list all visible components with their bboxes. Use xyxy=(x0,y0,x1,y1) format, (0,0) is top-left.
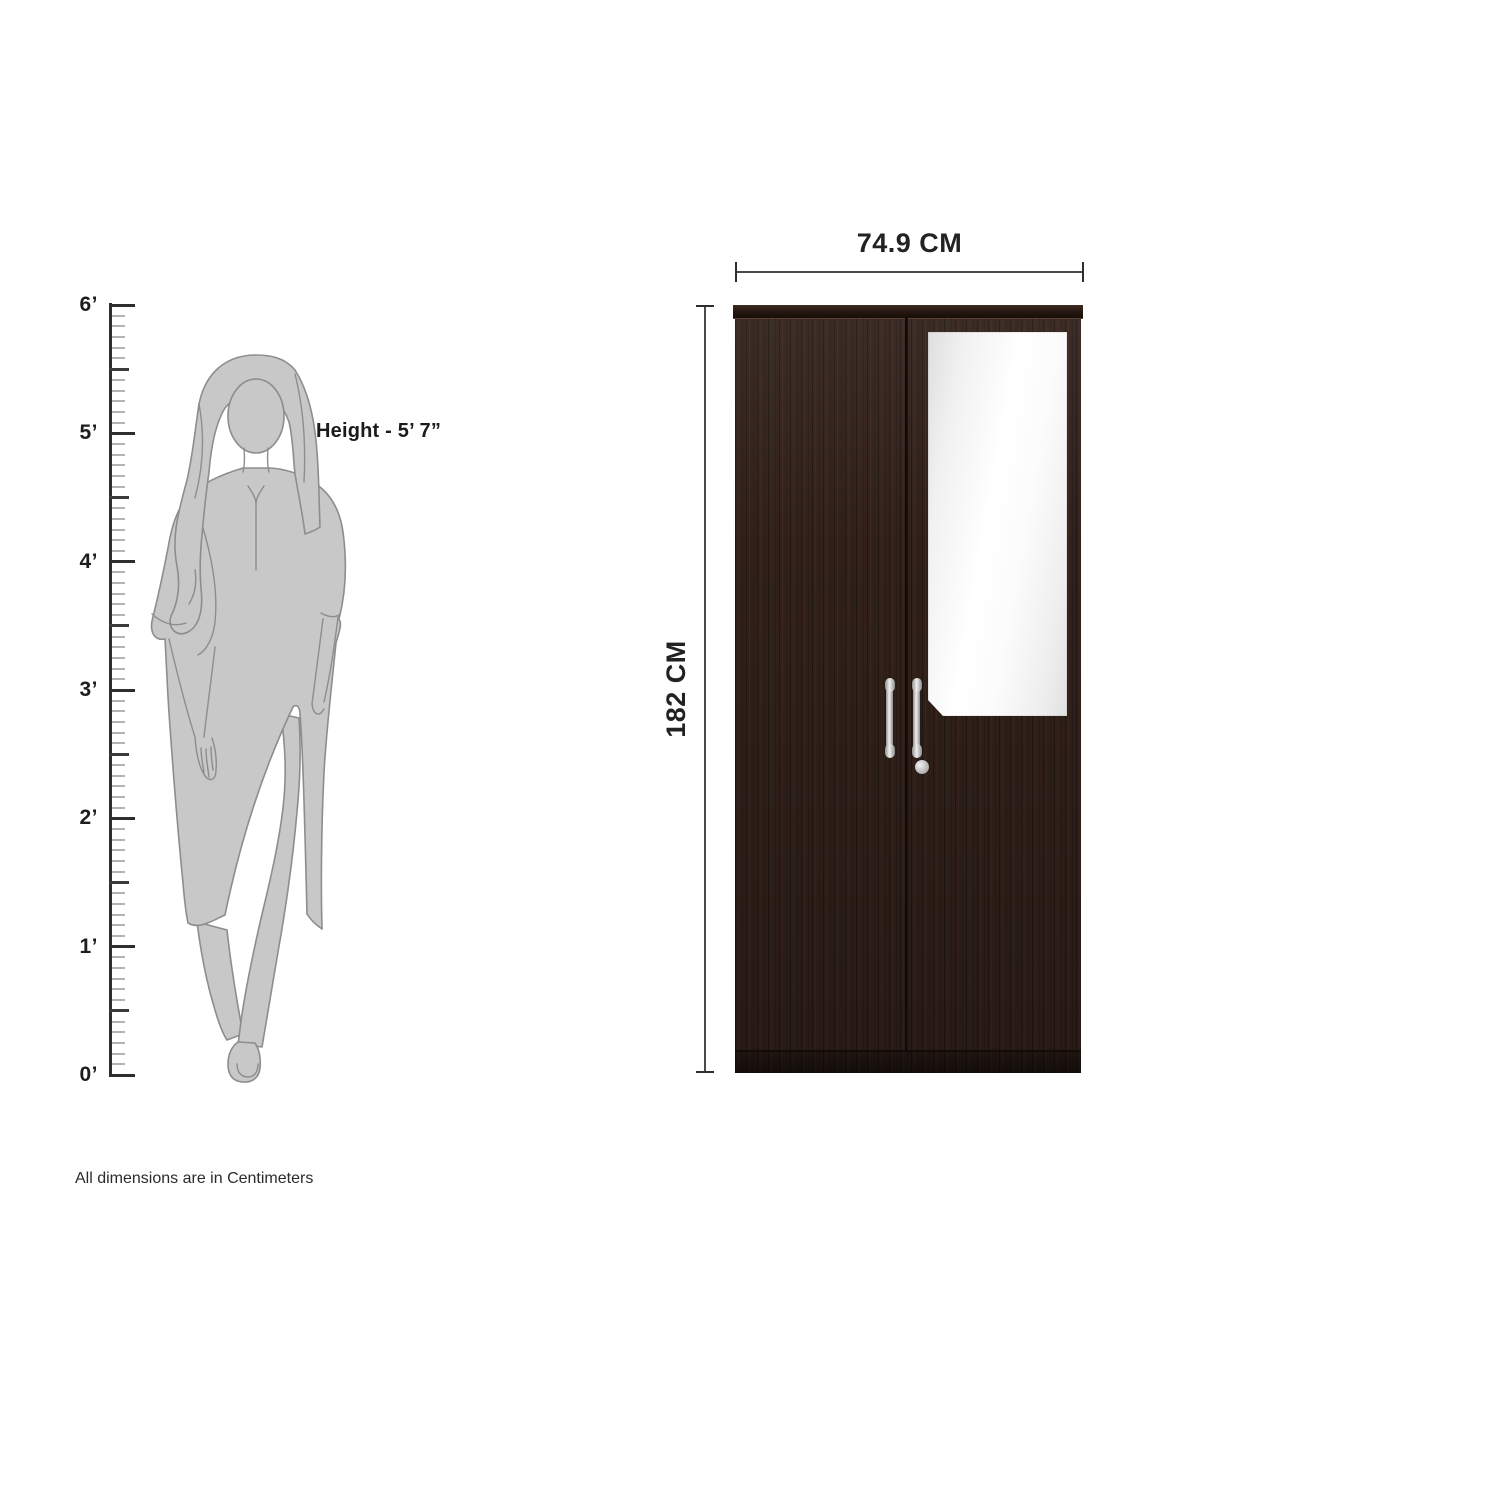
ruler-major-tick xyxy=(109,817,135,820)
ruler-minor-tick xyxy=(112,849,125,851)
ruler-minor-tick xyxy=(112,571,125,573)
ruler-minor-tick xyxy=(112,614,125,616)
ruler-major-tick xyxy=(109,560,135,563)
ruler-minor-tick xyxy=(112,486,125,488)
ruler-minor-tick xyxy=(112,443,125,445)
ruler-minor-tick xyxy=(112,742,125,744)
ruler-minor-tick xyxy=(112,785,125,787)
ruler-label-6ft: 6’ xyxy=(56,293,98,317)
width-dimension-tick-left xyxy=(735,262,737,282)
ruler-major-tick xyxy=(109,1009,129,1012)
ruler-minor-tick xyxy=(112,315,125,317)
ruler-label-0ft: 0’ xyxy=(56,1063,98,1087)
ruler-minor-tick xyxy=(112,1042,125,1044)
ruler-minor-tick xyxy=(112,999,125,1001)
ruler-minor-tick xyxy=(112,636,125,638)
ruler-major-tick xyxy=(109,432,135,435)
ruler-minor-tick xyxy=(112,1031,125,1033)
ruler-minor-tick xyxy=(112,464,125,466)
ruler-minor-tick xyxy=(112,892,125,894)
ruler-minor-tick xyxy=(112,860,125,862)
height-dimension-line xyxy=(696,305,714,1073)
ruler-minor-tick xyxy=(112,347,125,349)
ruler-minor-tick xyxy=(112,978,125,980)
ruler-minor-tick xyxy=(112,700,125,702)
ruler-major-tick xyxy=(109,304,135,307)
width-dimension-tick-right xyxy=(1082,262,1084,282)
ruler-label-5ft: 5’ xyxy=(56,421,98,445)
dimensions-unit-note: All dimensions are in Centimeters xyxy=(75,1170,313,1188)
ruler-minor-tick xyxy=(112,411,125,413)
wardrobe-height-label: 182 CM xyxy=(662,619,690,759)
ruler-minor-tick xyxy=(112,1053,125,1055)
ruler-minor-tick xyxy=(112,507,125,509)
ruler-major-tick xyxy=(109,881,129,884)
ruler-minor-tick xyxy=(112,871,125,873)
ruler-major-tick xyxy=(109,496,129,499)
ruler-minor-tick xyxy=(112,657,125,659)
wardrobe-lock-knob xyxy=(915,760,929,774)
wardrobe-width-label: 74.9 CM xyxy=(735,228,1084,259)
ruler-minor-tick xyxy=(112,475,125,477)
ruler-label-3ft: 3’ xyxy=(56,678,98,702)
wardrobe-right-door-handle xyxy=(913,680,920,756)
ruler-minor-tick xyxy=(112,400,125,402)
ruler-minor-tick xyxy=(112,646,125,648)
ruler-minor-tick xyxy=(112,775,125,777)
ruler-minor-tick xyxy=(112,828,125,830)
ruler-minor-tick xyxy=(112,988,125,990)
wardrobe-mirror xyxy=(928,332,1067,716)
ruler-minor-tick xyxy=(112,422,125,424)
ruler-minor-tick xyxy=(112,796,125,798)
ruler-minor-tick xyxy=(112,379,125,381)
wardrobe-top-cap xyxy=(733,305,1083,319)
ruler-minor-tick xyxy=(112,807,125,809)
width-dimension-line xyxy=(735,262,1084,282)
ruler-minor-tick xyxy=(112,593,125,595)
wardrobe-door-gap xyxy=(905,318,908,1050)
ruler-minor-tick xyxy=(112,603,125,605)
ruler-minor-tick xyxy=(112,518,125,520)
ruler-minor-tick xyxy=(112,710,125,712)
product-dimension-diagram: 6’ 5’ 4’ 3’ 2’ 1’ 0’ xyxy=(0,0,1500,1500)
ruler-major-tick xyxy=(109,624,129,627)
ruler-minor-tick xyxy=(112,764,125,766)
ruler-minor-tick xyxy=(112,539,125,541)
ruler-minor-tick xyxy=(112,550,125,552)
ruler-minor-tick xyxy=(112,582,125,584)
ruler-minor-tick xyxy=(112,357,125,359)
ruler-minor-tick xyxy=(112,325,125,327)
ruler-minor-tick xyxy=(112,956,125,958)
height-dimension-rule xyxy=(704,305,706,1073)
person-face xyxy=(228,379,284,453)
ruler-minor-tick xyxy=(112,529,125,531)
ruler-minor-tick xyxy=(112,390,125,392)
ruler-minor-tick xyxy=(112,839,125,841)
ruler-minor-tick xyxy=(112,732,125,734)
wardrobe-plinth xyxy=(735,1052,1081,1073)
ruler-major-tick xyxy=(109,368,129,371)
ruler-minor-tick xyxy=(112,1021,125,1023)
ruler-major-tick xyxy=(109,945,135,948)
ruler-major-tick xyxy=(109,753,129,756)
ruler-minor-tick xyxy=(112,336,125,338)
height-dimension-tick-bottom xyxy=(696,1071,714,1073)
ruler-label-2ft: 2’ xyxy=(56,806,98,830)
ruler-minor-tick xyxy=(112,935,125,937)
ruler-major-tick xyxy=(109,1074,135,1077)
ruler-minor-tick xyxy=(112,1063,125,1065)
wardrobe xyxy=(735,305,1081,1073)
ruler-label-1ft: 1’ xyxy=(56,935,98,959)
width-dimension-rule xyxy=(735,271,1084,273)
ruler-minor-tick xyxy=(112,903,125,905)
person-back-leg xyxy=(197,922,243,1040)
height-dimension-tick-top xyxy=(696,305,714,307)
ruler-minor-tick xyxy=(112,914,125,916)
ruler-major-tick xyxy=(109,689,135,692)
person-silhouette xyxy=(145,352,365,1092)
ruler-minor-tick xyxy=(112,678,125,680)
ruler-minor-tick xyxy=(112,924,125,926)
person-height-label: Height - 5’ 7” xyxy=(316,420,441,443)
ruler-label-4ft: 4’ xyxy=(56,550,98,574)
ruler-minor-tick xyxy=(112,454,125,456)
ruler-minor-tick xyxy=(112,721,125,723)
wardrobe-left-door-handle xyxy=(886,680,893,756)
ruler-minor-tick xyxy=(112,967,125,969)
ruler-minor-tick xyxy=(112,668,125,670)
